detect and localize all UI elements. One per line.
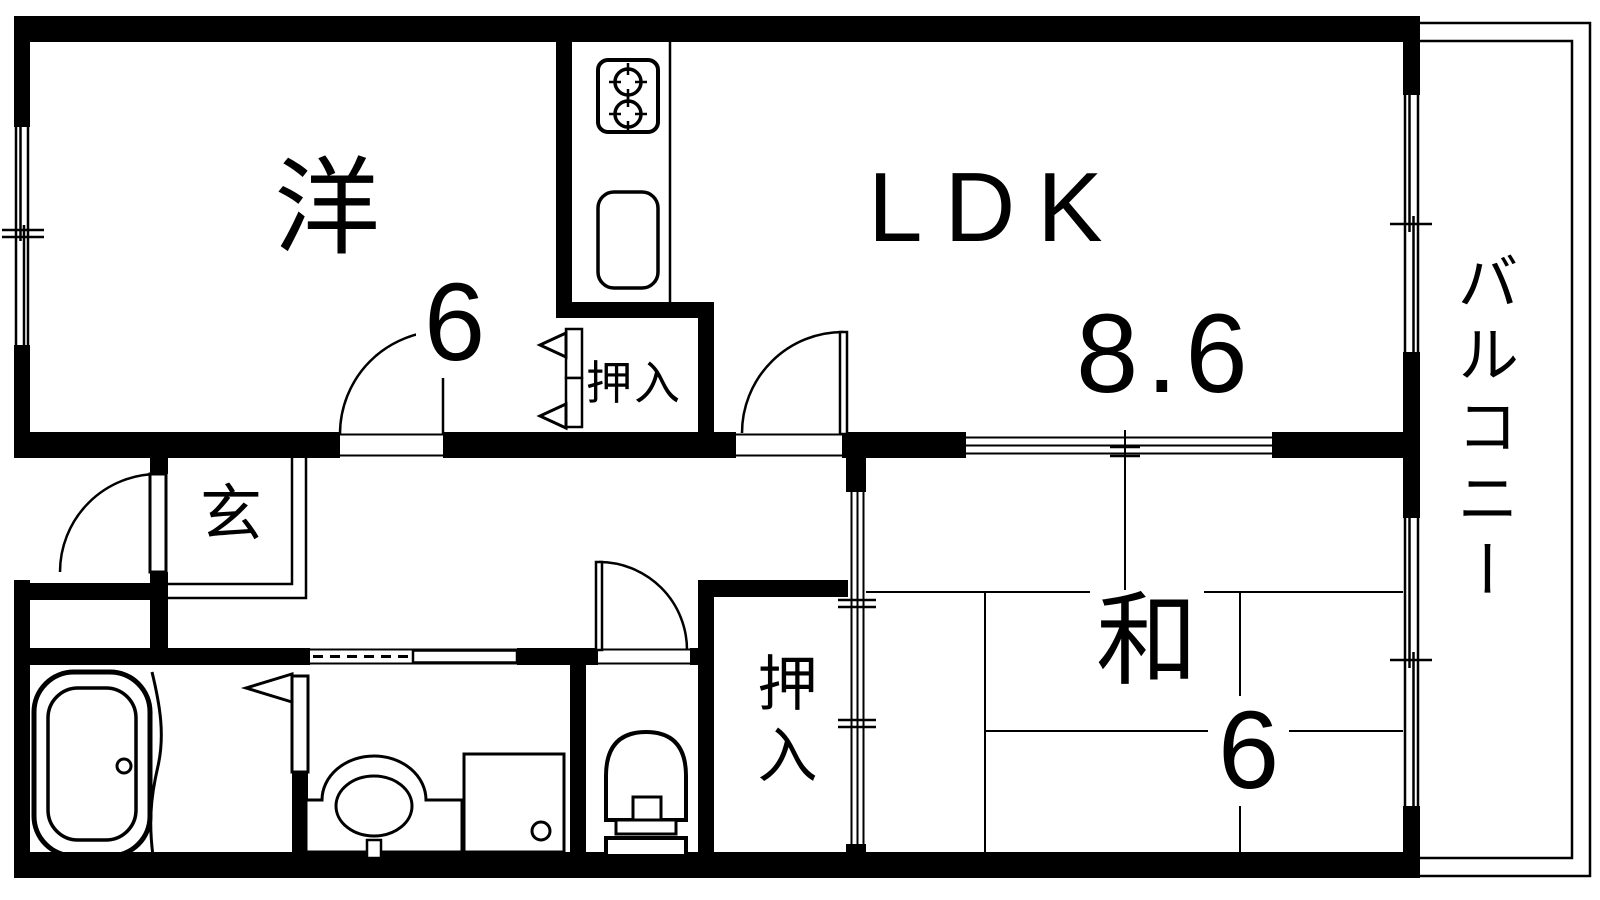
toilet-door	[596, 562, 690, 664]
door-open-direction-triangle	[540, 404, 566, 428]
entrance-label: 玄	[200, 484, 262, 546]
bathroom	[34, 672, 161, 856]
hall-japanese-fusuma	[838, 492, 876, 844]
west-window	[2, 127, 44, 345]
door-swing-arc-icon	[60, 474, 158, 572]
western-room-label: 洋	[274, 156, 380, 262]
entry-door	[60, 474, 166, 572]
ldk-japanese-sliding-door	[966, 430, 1272, 592]
wall-left-lower	[14, 580, 30, 878]
toilet-tank	[606, 838, 686, 856]
balcony-label: バルコニー	[1450, 250, 1512, 610]
wall-kitchen-left	[556, 42, 572, 302]
kitchen-sink-icon	[598, 192, 658, 288]
wall-ps-right	[150, 583, 168, 665]
door-open-direction-triangle	[540, 333, 566, 357]
wall-fusuma-stub-top	[846, 458, 866, 492]
wall-bottom	[14, 852, 1420, 878]
ldk-balcony-window	[1390, 95, 1432, 352]
bathtub-inner-line	[48, 688, 136, 840]
toilet-base-bar	[616, 820, 676, 834]
toilet-seat-hinge	[633, 797, 661, 820]
wall-right-a	[1403, 42, 1420, 95]
washbasin-drain	[367, 840, 381, 858]
wall-right-c	[1403, 806, 1420, 852]
wall-ps-top	[30, 583, 168, 600]
burner-tick-marks	[609, 63, 647, 133]
wall-hall-band-3	[842, 432, 966, 458]
wall-washroom-top-mid	[517, 648, 598, 665]
wall-top	[14, 16, 1420, 42]
kitchen-counter	[598, 42, 670, 302]
bathtub-drain-icon	[117, 759, 131, 773]
wall-entry-top-stub	[150, 458, 168, 474]
door-swing-arc-icon	[742, 332, 843, 433]
door-swing-arc-icon	[599, 562, 687, 650]
door-leaf	[840, 332, 847, 434]
ldk-door	[736, 332, 847, 456]
floor-plan: 洋 6 LDK 8.6 和 6 玄 押入 押入 バルコニー	[0, 0, 1600, 900]
wall-closet-lower-top	[698, 580, 848, 597]
wall-kitchen-bottom	[556, 302, 714, 318]
closet-upper-label: 押入	[568, 360, 700, 406]
wall-fusuma-stub-bottom	[846, 844, 866, 854]
washbasin-bowl	[336, 776, 412, 836]
wall-hall-band-4	[1272, 432, 1403, 458]
bathroom-door	[246, 674, 308, 772]
door-leaf	[150, 474, 166, 572]
western-room-size: 6	[416, 268, 493, 378]
wall-hall-band-1	[14, 432, 340, 458]
japanese-room-label: 和	[1090, 590, 1204, 692]
door-leaf	[596, 562, 602, 650]
wall-closet-upper-right	[698, 318, 714, 432]
sliding-door-panel	[413, 651, 517, 663]
japanese-balcony-window	[1390, 518, 1432, 806]
ldk-label: LDK	[868, 158, 1125, 256]
closet-lower-label: 押入	[752, 652, 812, 796]
washroom	[306, 754, 564, 858]
washroom-sliding-door	[310, 650, 517, 664]
wall-entry-hinge-stub	[150, 572, 168, 583]
wall-right-b	[1403, 352, 1420, 518]
toilet-icon	[606, 732, 686, 856]
wall-left-upper-a	[14, 16, 30, 127]
door-open-direction-triangle	[246, 674, 292, 702]
bathtub-icon	[34, 672, 150, 856]
wall-washroom-top-west	[30, 648, 310, 665]
door-panel	[292, 676, 308, 772]
wall-closet-lower-left	[698, 597, 714, 852]
japanese-room-size: 6	[1208, 696, 1289, 806]
wall-washroom-top-east	[690, 648, 714, 665]
wall-hall-band-2	[443, 432, 736, 458]
wall-toilet-left	[570, 665, 586, 852]
ldk-size: 8.6	[1076, 298, 1256, 410]
washing-machine-drain-icon	[532, 822, 550, 840]
